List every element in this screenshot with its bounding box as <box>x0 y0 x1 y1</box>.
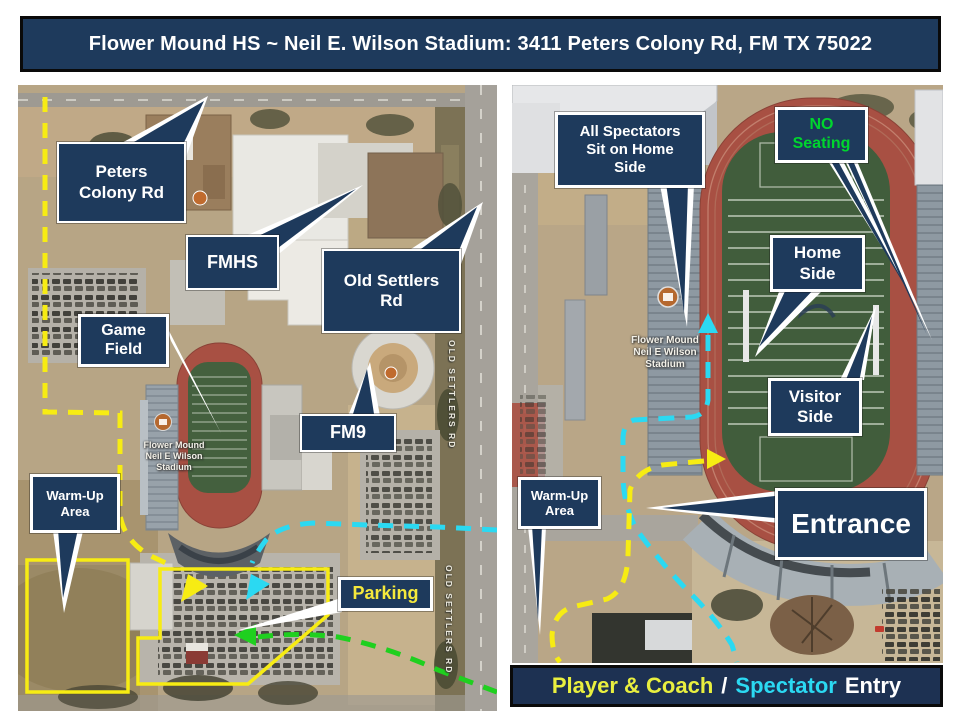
player-coach-label: Player & Coach <box>552 673 713 699</box>
slide: Flower Mound HS ~ Neil E. Wilson Stadium… <box>0 0 960 720</box>
callout-parking: Parking <box>338 577 433 611</box>
callout-entrance: Entrance <box>775 488 927 560</box>
callout-game-field: Game Field <box>78 314 169 367</box>
callout-no-seating: NO Seating <box>775 107 868 163</box>
left-campus-map: Flower Mound Neil E Wilson Stadium OLD S… <box>18 85 497 711</box>
entry-legend-banner: Player & Coach / Spectator Entry <box>510 665 943 707</box>
callout-fm9: FM9 <box>300 414 396 452</box>
callout-old-settlers-rd: Old Settlers Rd <box>322 249 461 333</box>
callout-warm-up-area-right: Warm-Up Area <box>518 477 601 529</box>
road-label-old-settlers-bottom: OLD SETTLERS RD <box>444 565 454 675</box>
stadium-map-label: Flower Mound Neil E Wilson Stadium <box>622 335 708 371</box>
callout-warm-up-area-left: Warm-Up Area <box>30 474 120 533</box>
separator-label: / <box>721 673 727 699</box>
stadium-map-label: Flower Mound Neil E Wilson Stadium <box>134 440 214 472</box>
right-stadium-map: Flower Mound Neil E Wilson Stadium All S… <box>512 85 943 663</box>
callout-all-spectators: All Spectators Sit on Home Side <box>555 112 705 188</box>
title-banner: Flower Mound HS ~ Neil E. Wilson Stadium… <box>20 16 941 72</box>
callout-peters-colony-rd: Peters Colony Rd <box>57 142 186 223</box>
callout-home-side: Home Side <box>770 235 865 292</box>
entry-label: Entry <box>845 673 901 699</box>
road-label-old-settlers-top: OLD SETTLERS RD <box>447 340 457 450</box>
title-text: Flower Mound HS ~ Neil E. Wilson Stadium… <box>89 33 873 56</box>
spectator-label: Spectator <box>735 673 836 699</box>
callout-visitor-side: Visitor Side <box>768 378 862 436</box>
callout-fmhs: FMHS <box>186 235 279 290</box>
